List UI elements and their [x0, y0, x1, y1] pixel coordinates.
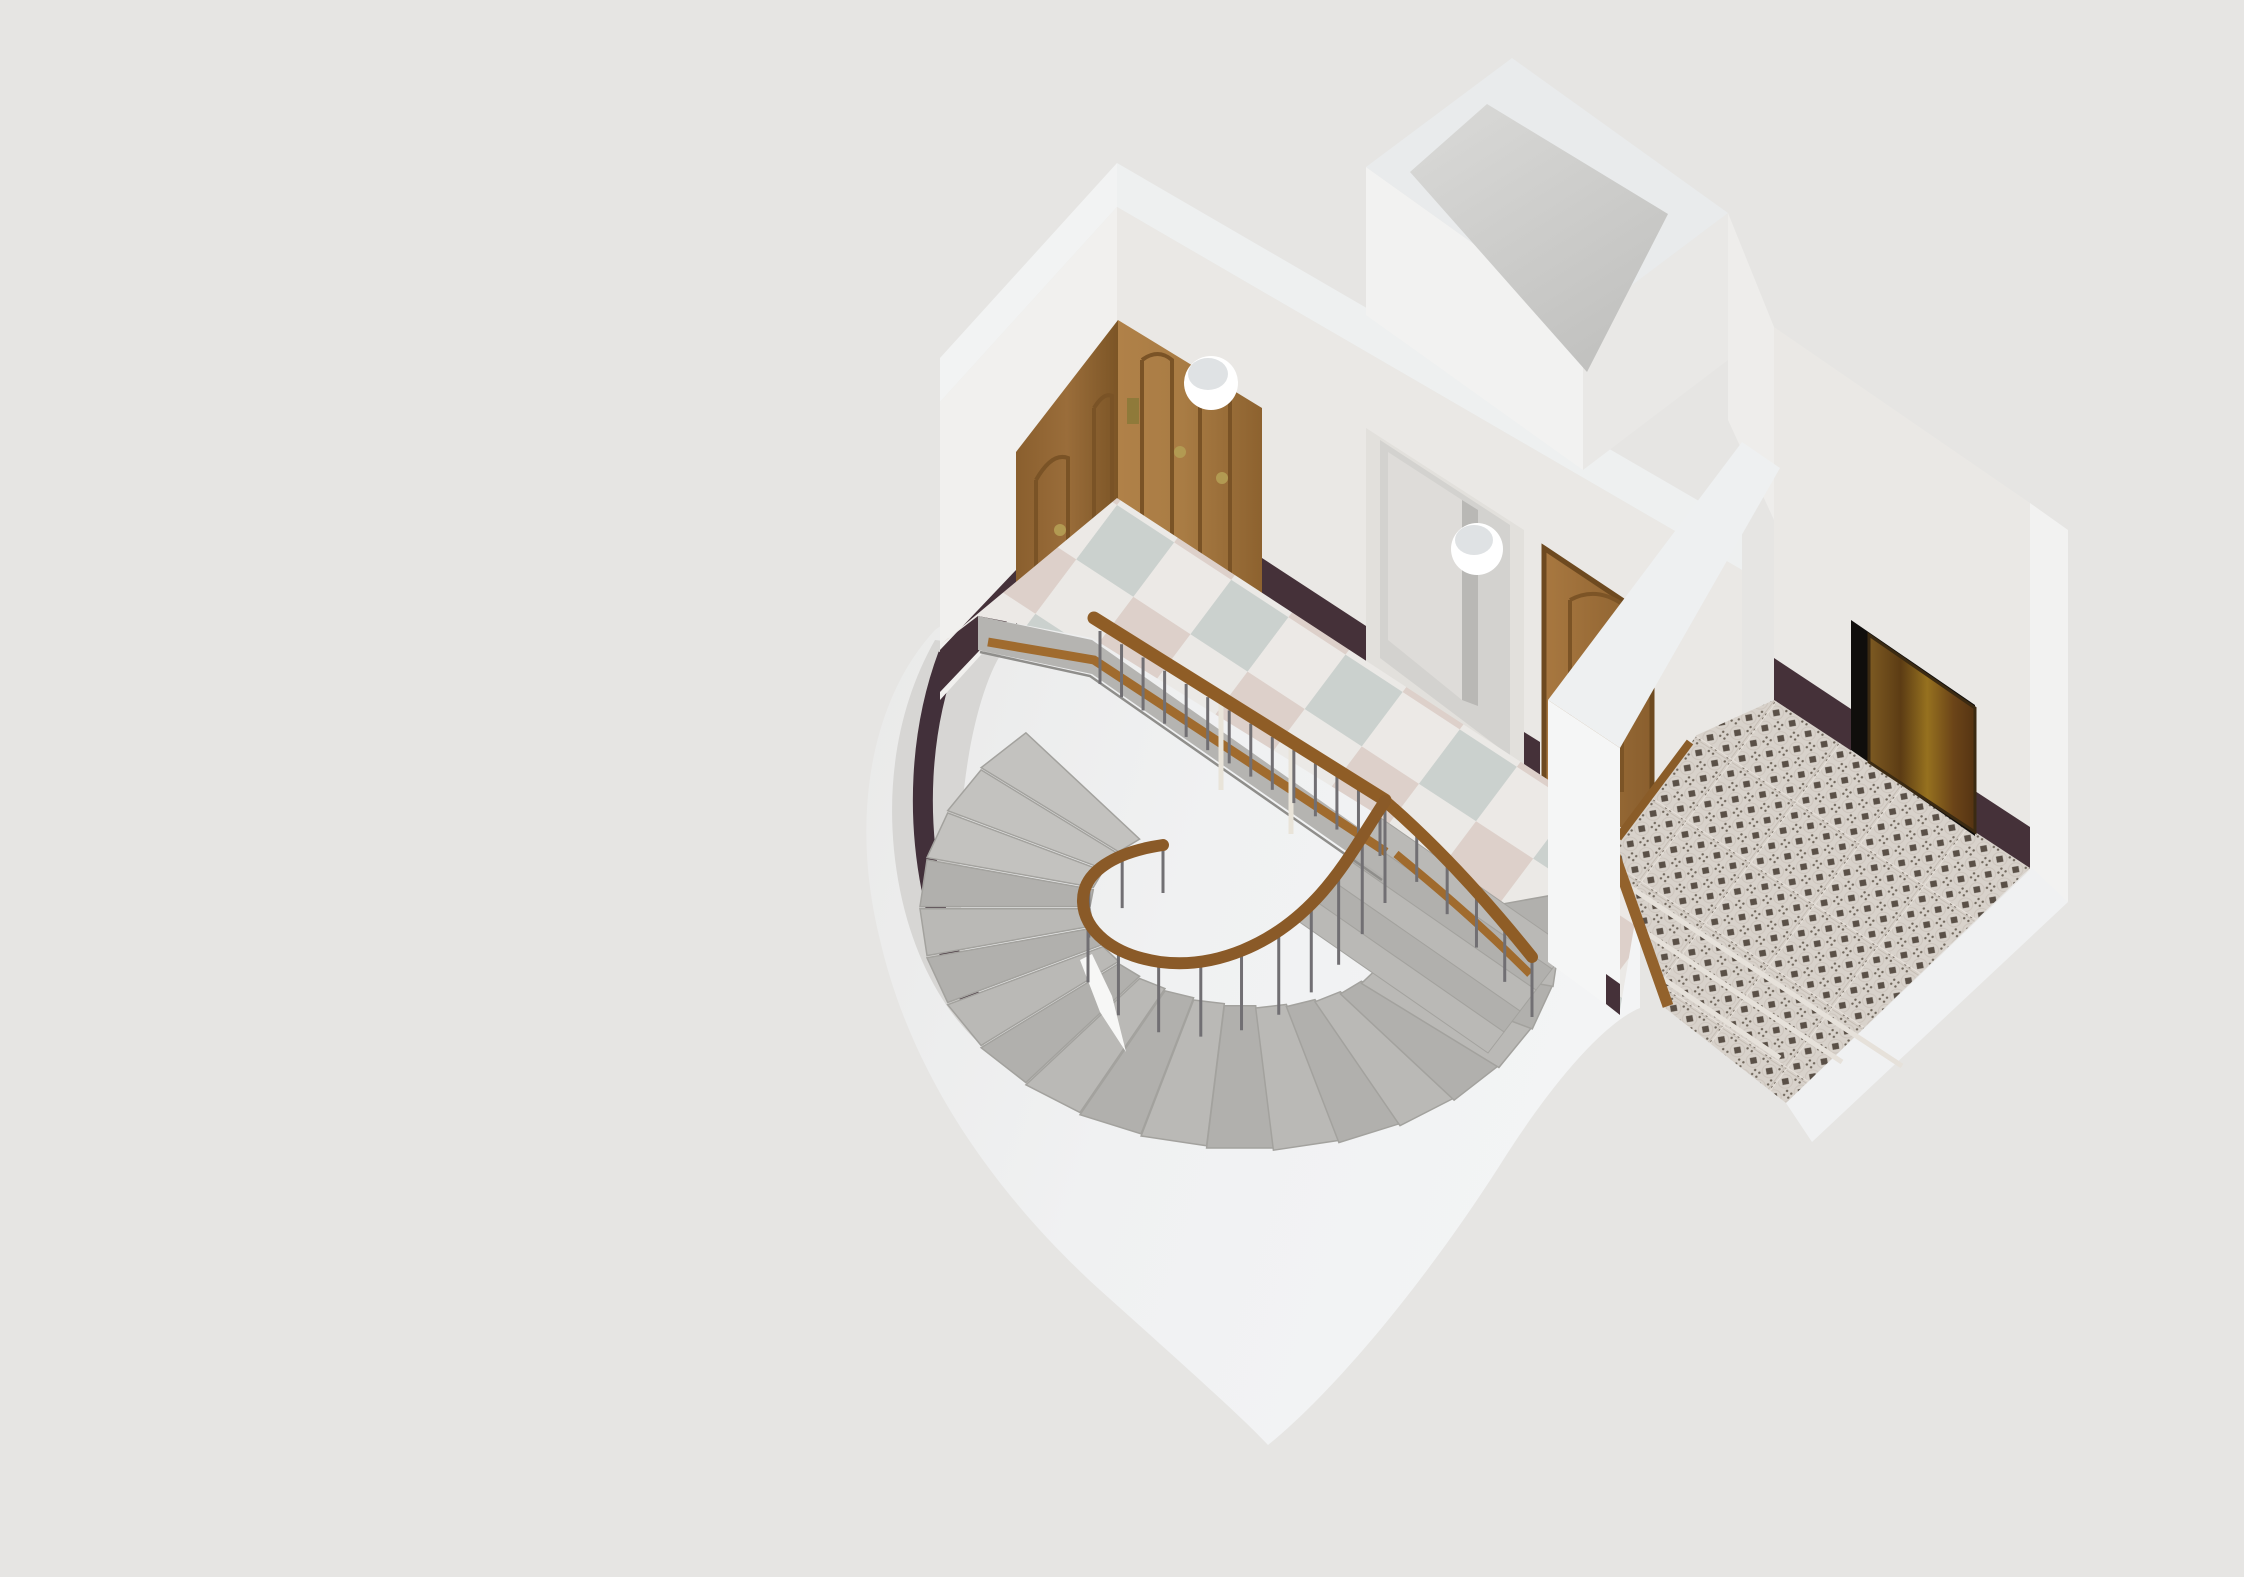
brass-handle-left	[1054, 524, 1066, 536]
render-viewport	[0, 0, 2244, 1577]
globe-lamp-1	[1184, 356, 1238, 410]
globe-lamp-2	[1451, 523, 1503, 575]
brass-lock-corner	[1127, 398, 1139, 424]
entry-right-cut-edge	[2030, 503, 2068, 902]
scene-canvas	[0, 0, 2244, 1577]
brass-handle-right-1	[1174, 446, 1186, 458]
cut-wall-face	[1548, 700, 1620, 1015]
brass-handle-right-2	[1216, 472, 1228, 484]
lamp-cap	[1455, 525, 1493, 555]
lamp-cap	[1188, 358, 1228, 390]
